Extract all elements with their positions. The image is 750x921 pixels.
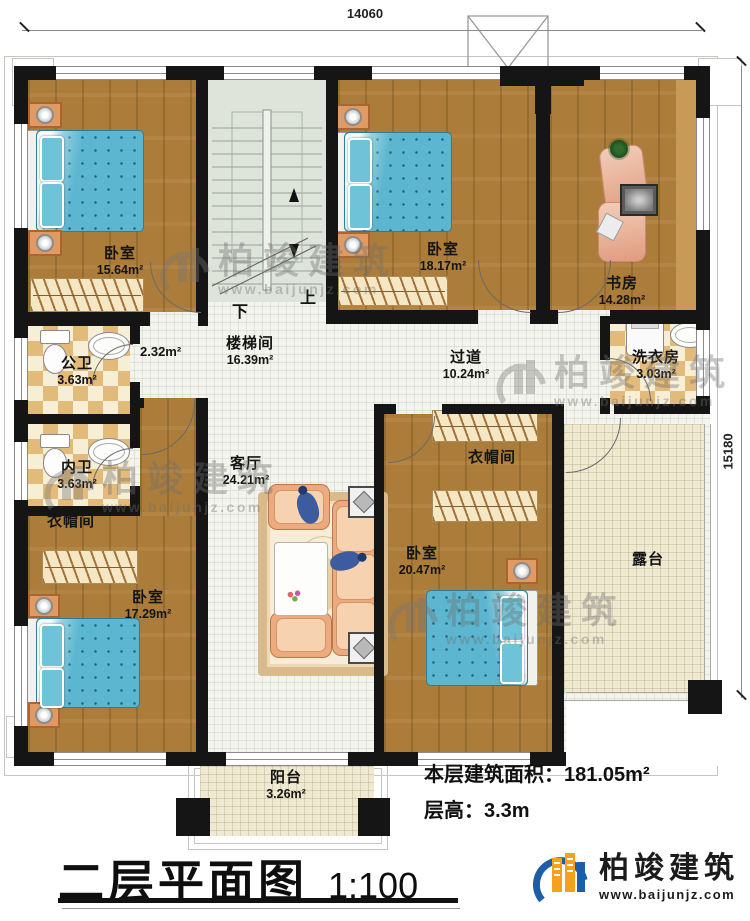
window (696, 118, 710, 230)
floorplan-canvas: 下 上 (0, 0, 750, 921)
wall (14, 312, 150, 326)
title-underline-thin (62, 908, 460, 909)
stair-treads (208, 80, 326, 302)
company-logo: 柏竣建筑 www.baijunjz.com (532, 846, 739, 908)
dimension-line-top (22, 30, 702, 31)
pillow (40, 136, 64, 182)
pillow (40, 624, 64, 668)
nightstand (28, 102, 62, 128)
niche-area-label: 2.32m² (140, 344, 181, 359)
window (56, 66, 166, 80)
pillow (40, 182, 64, 228)
armchair-cushion (276, 618, 326, 652)
sliding-door (226, 752, 348, 766)
lamp-icon (35, 706, 53, 724)
room-label-laundry: 洗衣房 3.03m² (608, 350, 704, 381)
wall (314, 66, 372, 80)
nightstand (336, 104, 370, 130)
nightstand (336, 232, 370, 258)
wall (384, 404, 396, 414)
wall (374, 404, 384, 766)
lamp-icon (344, 108, 362, 126)
dimension-label-width: 14060 (330, 6, 400, 21)
company-name: 柏竣建筑 (599, 854, 739, 884)
window (54, 752, 166, 766)
chimney-outline (466, 14, 550, 74)
nightstand (506, 558, 538, 584)
room-label-bedroom3: 卧室 17.29m² (98, 590, 198, 621)
window (224, 66, 314, 80)
wall (130, 326, 140, 344)
window (14, 626, 28, 726)
lamp-icon (513, 562, 531, 580)
wall (326, 310, 478, 324)
floor-area-line: 本层建筑面积：181.05m² (424, 758, 650, 787)
room-label-inner-bath: 内卫 3.63m² (27, 460, 127, 491)
room-label-bedroom1: 卧室 15.64m² (70, 246, 170, 277)
window (14, 442, 28, 500)
wall (14, 414, 140, 424)
room-label-bedroom2: 卧室 18.17m² (393, 242, 493, 273)
wardrobe-rail (338, 276, 448, 306)
wall (536, 66, 550, 310)
wall (166, 66, 224, 80)
pillow (40, 668, 64, 708)
toilet-icon (40, 434, 70, 448)
wall (14, 66, 28, 124)
lamp-icon (344, 236, 362, 254)
toilet-icon (40, 330, 70, 344)
wall (326, 66, 338, 310)
balcony-column (176, 798, 210, 836)
wardrobe-rail (42, 550, 138, 584)
floor-info: 本层建筑面积：181.05m² 层高：3.3m (424, 758, 650, 823)
wall (196, 398, 208, 766)
lamp-icon (36, 106, 54, 124)
wall (198, 312, 208, 326)
window (14, 338, 28, 400)
wall (552, 404, 564, 766)
title-underline (58, 898, 458, 903)
pillow (500, 642, 524, 684)
pillow (348, 138, 372, 184)
company-url: www.baijunjz.com (599, 888, 739, 901)
lamp-icon (35, 597, 53, 615)
stair-down-label: 下 (232, 298, 248, 322)
computer-monitor-icon (620, 184, 658, 216)
room-label-balcony: 阳台 3.26m² (236, 770, 336, 801)
room-label-stairwell: 楼梯间 16.39m² (200, 336, 300, 367)
room-label-public-bath: 公卫 3.63m² (27, 356, 127, 387)
balcony-column (358, 798, 390, 836)
wall (696, 66, 710, 118)
room-label-bedroom4: 卧室 20.47m² (372, 546, 472, 577)
room-label-closet2: 衣帽间 (442, 450, 542, 467)
wall (442, 404, 564, 414)
wardrobe-rail (30, 278, 144, 312)
wall (614, 404, 710, 414)
room-label-terrace: 露台 (598, 552, 698, 569)
pillow (348, 184, 372, 230)
coffee-table (274, 542, 328, 616)
wardrobe-rail (432, 490, 538, 522)
window (372, 66, 500, 80)
window (14, 124, 28, 228)
dimension-line-right (741, 66, 742, 698)
room-label-closet1: 衣帽间 (26, 514, 116, 531)
room-label-living: 客厅 24.21m² (196, 456, 296, 487)
study-floor-strip (676, 80, 696, 310)
terrace-column (688, 680, 722, 714)
stair-up-label: 上 (300, 284, 316, 308)
plant-icon (610, 140, 628, 158)
room-label-study: 书房 14.28m² (572, 276, 672, 307)
wall (610, 310, 710, 324)
lamp-icon (36, 234, 54, 252)
nightstand (28, 230, 62, 256)
floor-height-line: 层高：3.3m (424, 794, 650, 823)
wall (530, 310, 558, 324)
room-label-hallway: 过道 10.24m² (416, 350, 516, 381)
wardrobe-rail (432, 410, 538, 442)
dimension-label-height: 15180 (721, 417, 736, 487)
window (600, 66, 684, 80)
pillow (500, 596, 524, 642)
nightstand (28, 594, 60, 618)
wall (14, 752, 54, 766)
company-logo-icon (532, 846, 590, 908)
